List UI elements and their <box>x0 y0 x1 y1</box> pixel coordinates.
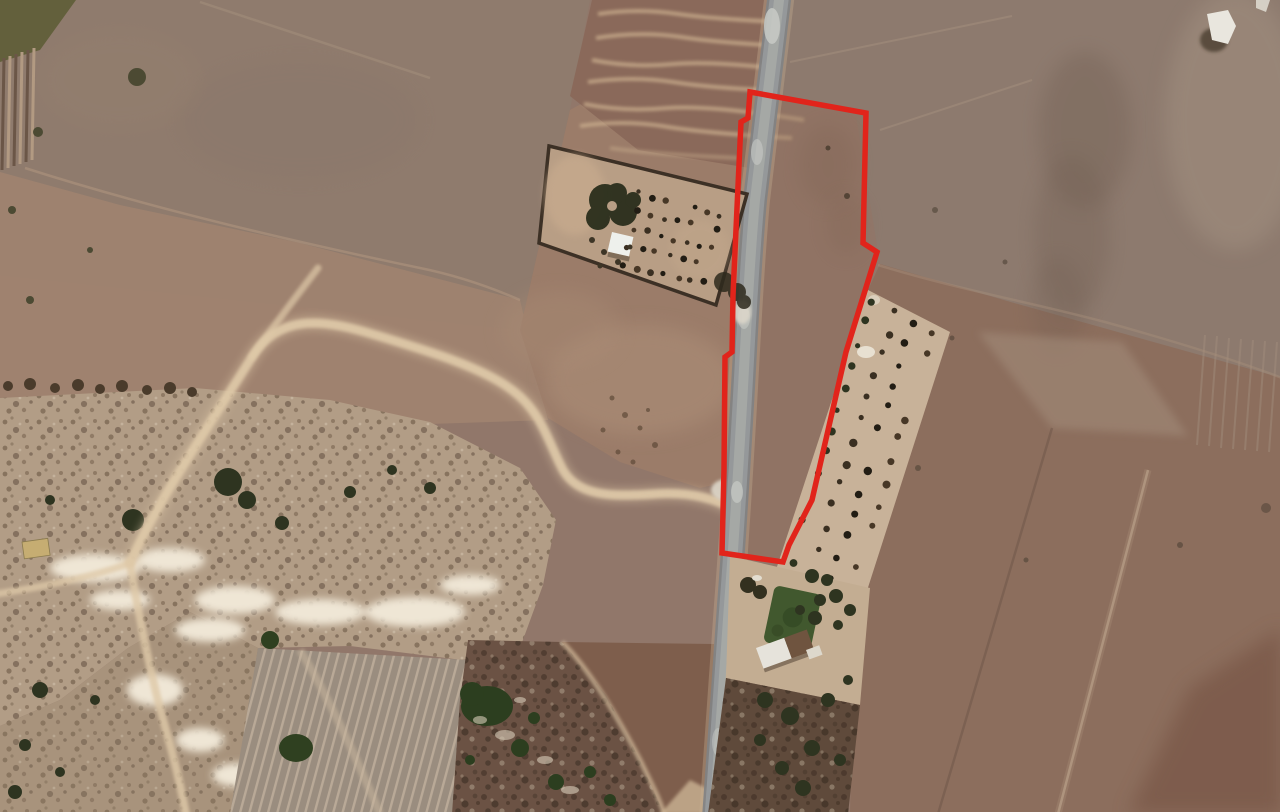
soil-mottle <box>180 60 420 180</box>
tree-dot <box>709 245 714 250</box>
tree-dot <box>651 248 657 254</box>
tree-dot <box>714 226 721 233</box>
tree-dot <box>879 349 884 354</box>
tree-dot <box>842 385 850 393</box>
tree-dot <box>647 269 654 276</box>
tree-dot <box>663 197 669 203</box>
tree-dot <box>833 555 840 562</box>
soil-light-patch <box>500 290 620 370</box>
tree-dot <box>870 372 877 379</box>
tree-dot <box>868 299 875 306</box>
tree-dot <box>694 259 699 264</box>
tree-dot <box>675 217 681 223</box>
tree-dot <box>843 461 851 469</box>
bottom-center-strip <box>452 640 714 812</box>
tree-dot <box>894 433 901 440</box>
tree-dot <box>885 402 891 408</box>
tree-dot <box>896 363 901 368</box>
tree-dot <box>685 240 690 245</box>
tree-dot <box>861 316 869 324</box>
hut <box>22 538 50 558</box>
tree-dot <box>632 228 637 233</box>
tree-dot <box>887 458 894 465</box>
tree-dot <box>901 339 909 347</box>
tree-dot <box>823 526 830 533</box>
tree-dot <box>837 479 842 484</box>
tree-dot <box>883 481 891 489</box>
tree-cluster-gap <box>607 201 617 211</box>
soil-mottle <box>40 30 200 130</box>
tree-dot <box>855 491 863 499</box>
tree-dot <box>697 244 702 249</box>
tree-dot <box>886 331 893 338</box>
satellite-imagery <box>0 0 1280 812</box>
tree-dot <box>816 547 821 552</box>
tree-dot <box>634 266 641 273</box>
farm-structure-dark <box>753 585 767 599</box>
tree-dot <box>892 308 898 314</box>
tree-dot <box>649 195 656 202</box>
tree-dot <box>924 350 930 356</box>
bush <box>279 734 313 762</box>
tree-dot <box>869 523 875 529</box>
tree-dot <box>851 511 858 518</box>
furrow-lines <box>230 648 468 812</box>
tree-dot <box>700 278 707 285</box>
tree-dot <box>688 220 694 226</box>
tree-dot <box>659 234 663 238</box>
tree-dot <box>849 439 857 447</box>
farmstead <box>708 556 870 812</box>
bush <box>261 631 279 649</box>
tree-dot <box>717 214 722 219</box>
tree-dot <box>890 383 896 389</box>
tree-dot <box>680 256 687 263</box>
tree-dot <box>864 467 872 475</box>
tree-dot <box>634 207 641 214</box>
tree-dot <box>648 213 654 219</box>
tree-dot <box>660 271 665 276</box>
tree-dot <box>687 277 693 283</box>
tree-dot <box>662 217 667 222</box>
tree-dot <box>790 559 798 567</box>
tree-dot <box>668 253 672 257</box>
enclosure-light-ground <box>670 220 730 280</box>
tree-dot <box>693 205 698 210</box>
tree-dot <box>636 189 640 193</box>
tree-dot <box>640 246 646 252</box>
tree-dot <box>644 227 651 234</box>
tree-dot <box>859 415 864 420</box>
white-ground-mark <box>857 346 875 358</box>
satellite-map-canvas[interactable] <box>0 0 1280 812</box>
tree-dot <box>848 362 855 369</box>
tree-dot <box>853 564 859 570</box>
tree-dot <box>910 320 918 328</box>
tree-dot <box>874 424 881 431</box>
tree-dot <box>855 343 860 348</box>
tree-dot <box>704 209 710 215</box>
tree-dot <box>929 330 935 336</box>
tree-dot <box>671 238 676 243</box>
tree-dot <box>864 394 870 400</box>
tree-dot <box>828 499 835 506</box>
tree-dot <box>901 417 909 425</box>
farm-structure-light <box>752 575 762 581</box>
tree-dot <box>676 276 682 282</box>
tree-dot <box>876 504 882 510</box>
furrowed-field <box>230 631 468 812</box>
tree-dot <box>844 531 852 539</box>
